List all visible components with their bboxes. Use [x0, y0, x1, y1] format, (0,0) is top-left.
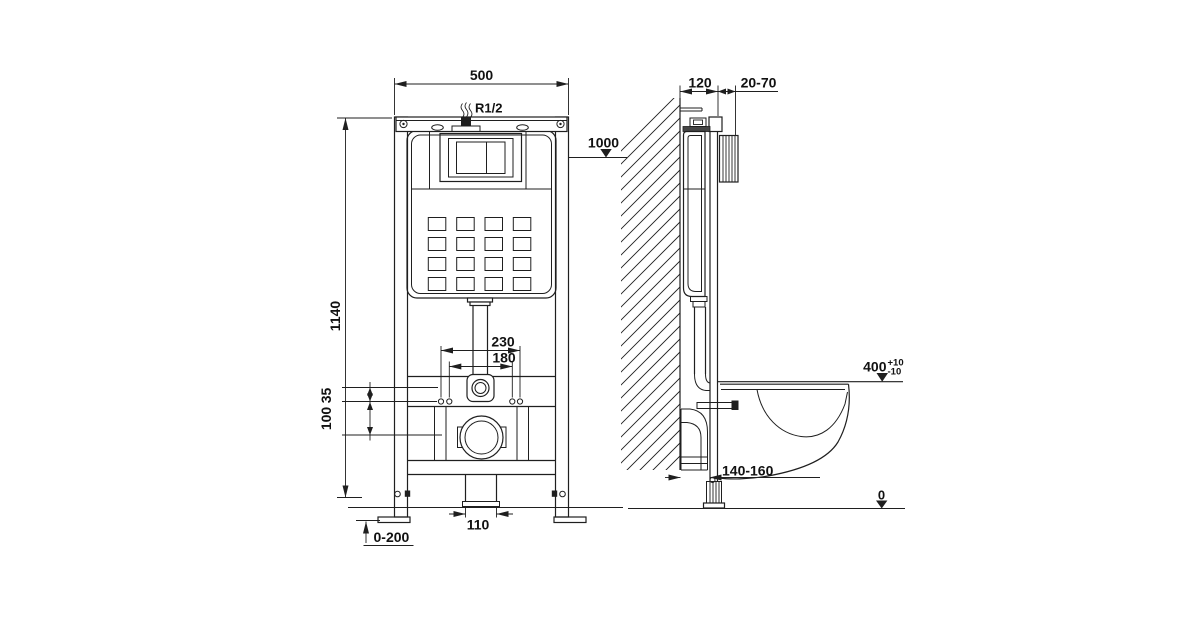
inlet-thread-label: R1/2 — [475, 101, 502, 116]
flush-pipe — [468, 298, 493, 375]
bowl-inlet-stub — [697, 403, 732, 409]
wall-section — [618, 92, 680, 518]
foot-side — [704, 482, 725, 509]
tolerance-minus-label: -10 — [888, 367, 902, 378]
dim-230-label: 230 — [491, 334, 515, 350]
level-marker-0: 0 — [876, 488, 887, 509]
front-view: R1/2 — [318, 67, 627, 546]
technical-drawing-page: R1/2 — [0, 0, 1200, 630]
dim-height-1140: 1140 — [327, 118, 392, 498]
dim-width-label: 500 — [470, 67, 494, 83]
dim-100-label: 100 — [318, 407, 334, 431]
cistern — [407, 131, 556, 299]
cistern-side — [684, 118, 708, 307]
dim-outlet-110: 110 — [449, 507, 513, 533]
frame-top-plate — [396, 117, 567, 132]
waste-outlet — [458, 416, 507, 459]
dim-180-label: 180 — [492, 350, 516, 366]
dim-leg-adjust: 0-200 — [356, 521, 414, 546]
level-400-label: 400 — [863, 359, 887, 375]
side-view: 120 20-70 400 +10 -10 140-160 0 — [618, 75, 905, 519]
level-0-label: 0 — [878, 488, 885, 503]
dim-wall-finish-20-70: 20-70 — [718, 75, 778, 92]
dim-110-label: 110 — [467, 517, 490, 533]
dim-20-70-label: 20-70 — [741, 75, 777, 91]
dim-offsets-35-100: 35 100 — [318, 382, 442, 441]
dim-35-label: 35 — [318, 388, 334, 404]
flush-bend-pipe — [695, 307, 711, 391]
dim-140-160-label: 140-160 — [722, 463, 774, 479]
dim-120-label: 120 — [688, 75, 712, 91]
water-squiggle-icon — [461, 104, 464, 118]
dim-depth-120: 120 — [680, 75, 736, 136]
waste-elbow — [681, 409, 708, 470]
flush-plate-housing — [720, 136, 739, 183]
level-marker-400: 400 +10 -10 — [863, 358, 903, 382]
dim-height-label: 1140 — [327, 301, 343, 332]
level-1000-label: 1000 — [588, 135, 619, 151]
level-marker-1000: 1000 — [569, 135, 628, 158]
mounting-grid — [428, 218, 531, 291]
flush-button — [440, 134, 522, 182]
wall-hatching — [618, 92, 680, 518]
waste-pipe — [463, 475, 500, 507]
water-connection-fitting — [467, 375, 494, 402]
dim-0-200-label: 0-200 — [374, 529, 410, 545]
wc-frame-installation-drawing: R1/2 — [0, 0, 1200, 630]
